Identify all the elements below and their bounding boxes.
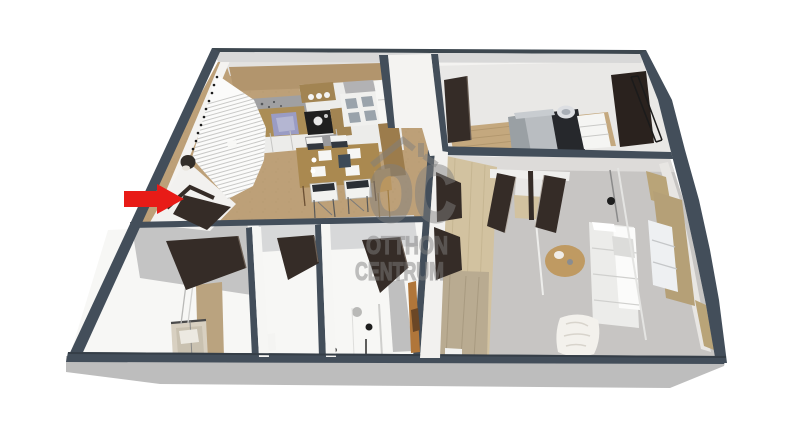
svg-text:CENTRUM: CENTRUM	[355, 258, 444, 286]
svg-text:OTTHON: OTTHON	[366, 232, 448, 260]
svg-text:OC: OC	[368, 149, 456, 238]
